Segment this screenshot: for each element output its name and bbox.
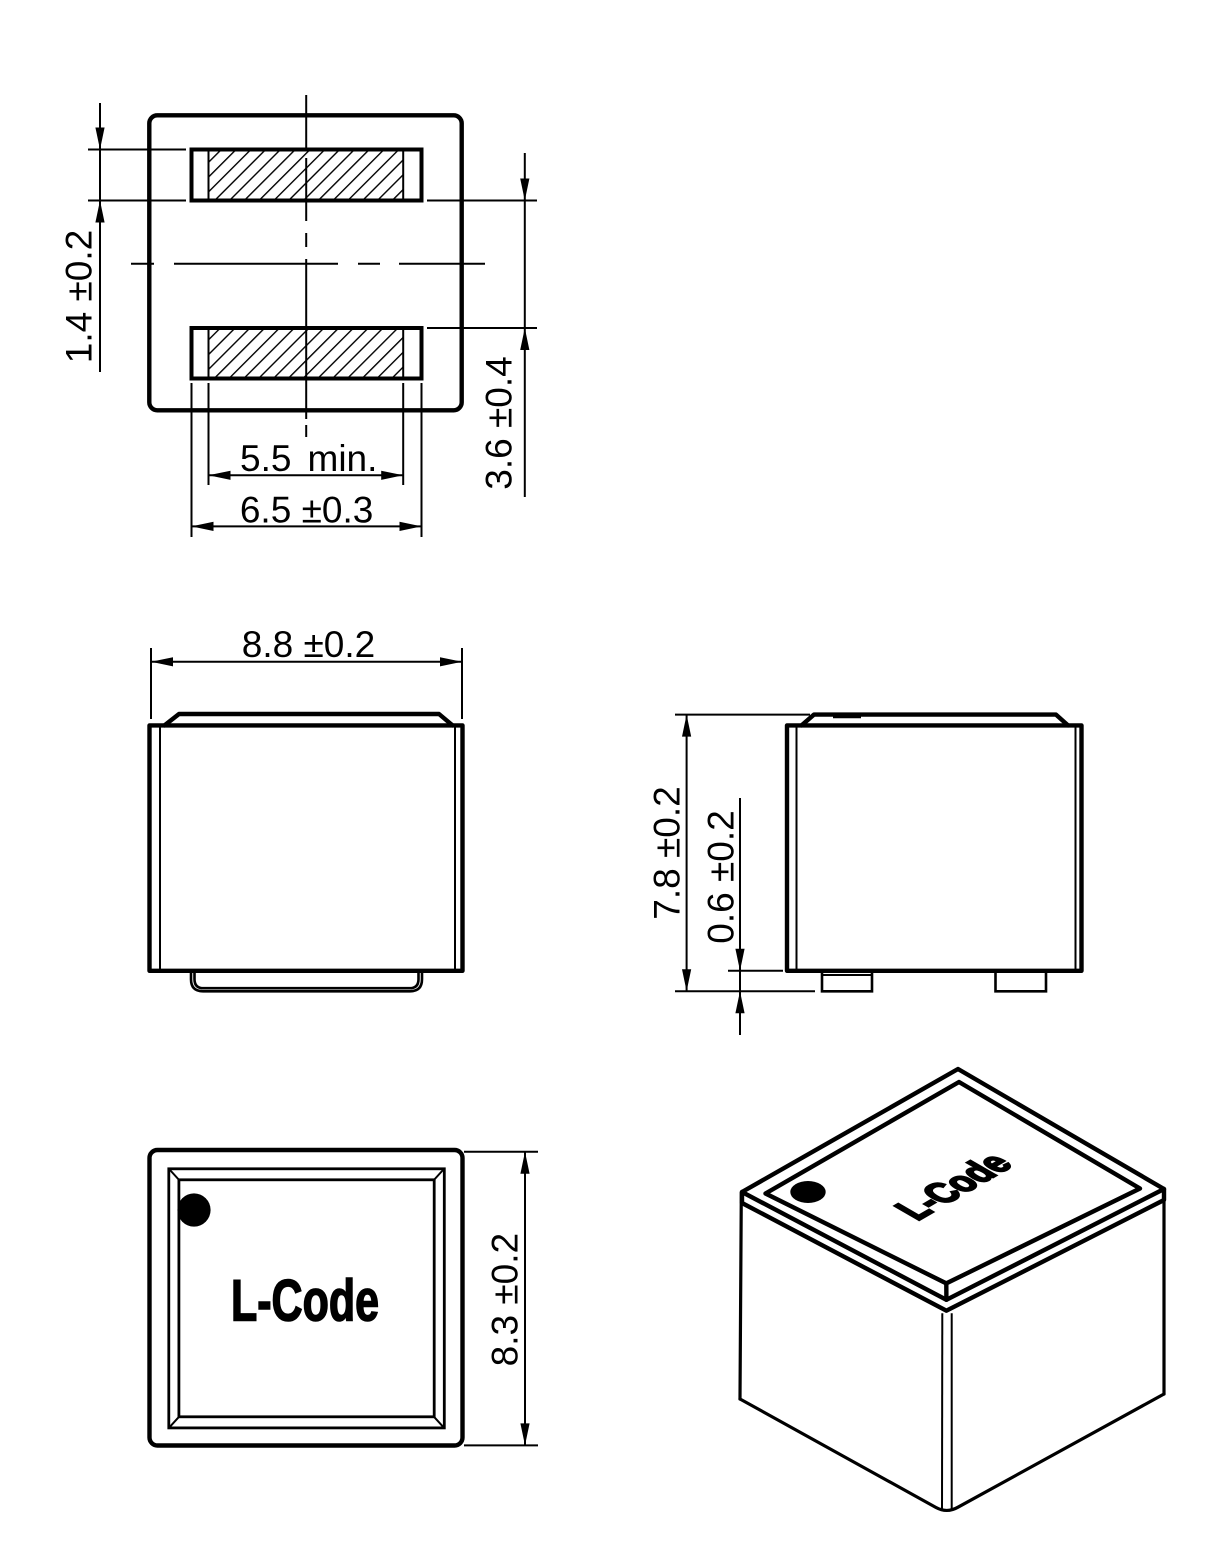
svg-text:3.6 ±0.4: 3.6 ±0.4 bbox=[479, 356, 520, 489]
svg-text:8.3 ±0.2: 8.3 ±0.2 bbox=[485, 1233, 526, 1366]
svg-text:7.8 ±0.2: 7.8 ±0.2 bbox=[647, 786, 688, 919]
svg-text:8.8 ±0.2: 8.8 ±0.2 bbox=[242, 624, 375, 665]
svg-text:L-Code: L-Code bbox=[231, 1269, 379, 1334]
svg-text:5.5: 5.5 bbox=[240, 438, 291, 479]
svg-text:6.5 ±0.3: 6.5 ±0.3 bbox=[240, 489, 373, 530]
svg-text:0.6 ±0.2: 0.6 ±0.2 bbox=[701, 810, 742, 943]
svg-text:min.: min. bbox=[308, 438, 378, 479]
svg-text:1.4 ±0.2: 1.4 ±0.2 bbox=[59, 230, 100, 363]
svg-text:L-Code: L-Code bbox=[885, 1147, 1022, 1226]
